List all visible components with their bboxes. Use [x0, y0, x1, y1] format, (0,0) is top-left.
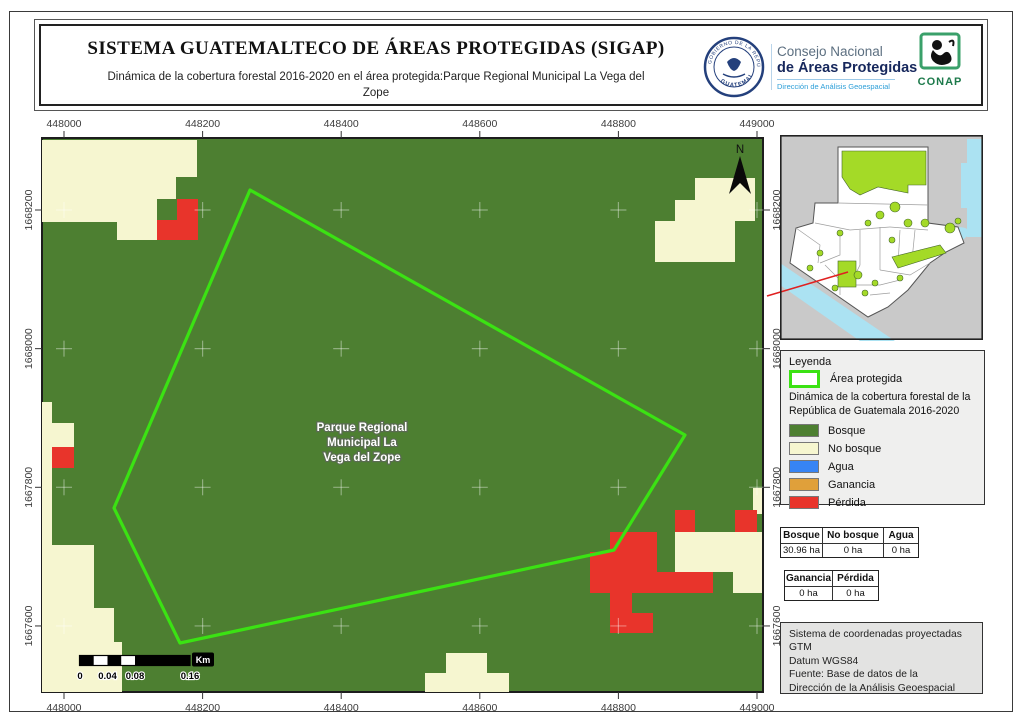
coverage-table: Bosque No bosque Agua 30.96 ha 0 ha 0 ha — [780, 527, 919, 558]
gobierno-seal-logo: GOBIERNO DE LA REPÚBLICA GUATEMALA — [703, 36, 765, 98]
crs-line: Fuente: Base de datos de la — [789, 668, 982, 681]
area-protegida-swatch — [789, 370, 820, 388]
crs-line: Sistema de coordenadas proyectadas — [789, 628, 982, 641]
crs-line: GTM — [789, 641, 982, 654]
inset-map — [780, 135, 983, 340]
conap-logo: CONAP — [913, 32, 967, 88]
legend-subtitle: Dinámica de la cobertura forestal de la … — [789, 391, 976, 419]
area-protegida-label: Área protegida — [830, 373, 902, 385]
perdida-swatch — [789, 496, 819, 509]
header-inner-border: SISTEMA GUATEMALTECO DE ÁREAS PROTEGIDAS… — [39, 24, 983, 106]
th-bosque: Bosque — [781, 528, 823, 544]
th-no-bosque: No bosque — [823, 528, 884, 544]
th-agua: Agua — [884, 528, 918, 544]
crs-info-box: Sistema de coordenadas proyectadas GTM D… — [780, 622, 983, 694]
legend-area-row: Área protegida — [789, 370, 984, 388]
org-line3: Dirección de Análisis Geoespacial — [777, 79, 895, 91]
logo-separator — [771, 44, 772, 90]
th-ganancia: Ganancia — [785, 571, 833, 587]
bosque-swatch — [789, 424, 819, 437]
legend-item-bosque: Bosque — [789, 422, 984, 440]
td-agua: 0 ha — [884, 544, 918, 557]
td-bosque: 30.96 ha — [781, 544, 823, 557]
agua-swatch — [789, 460, 819, 473]
td-perdida: 0 ha — [833, 587, 878, 600]
legend-title: Leyenda — [789, 356, 984, 368]
legend-item-perdida: Pérdida — [789, 494, 984, 512]
page-title: SISTEMA GUATEMALTECO DE ÁREAS PROTEGIDAS… — [71, 38, 681, 60]
crs-line: Dirección de la Análisis Geoespacial — [789, 682, 982, 695]
header-box: SISTEMA GUATEMALTECO DE ÁREAS PROTEGIDAS… — [34, 19, 988, 111]
conap-label: CONAP — [913, 76, 967, 88]
ganancia-swatch — [789, 478, 819, 491]
td-ganancia: 0 ha — [785, 587, 833, 600]
no-bosque-swatch — [789, 442, 819, 455]
change-table: Ganancia Pérdida 0 ha 0 ha — [784, 570, 879, 601]
th-perdida: Pérdida — [833, 571, 878, 587]
legend-item-agua: Agua — [789, 458, 984, 476]
legend-panel: Leyenda Área protegida Dinámica de la co… — [780, 350, 985, 505]
crs-line: Datum WGS84 — [789, 655, 982, 668]
legend-item-no-bosque: No bosque — [789, 440, 984, 458]
td-no-bosque: 0 ha — [823, 544, 884, 557]
legend-item-ganancia: Ganancia — [789, 476, 984, 494]
page-subtitle: Dinámica de la cobertura forestal 2016-2… — [101, 70, 651, 101]
conap-monkey-icon — [919, 32, 961, 70]
